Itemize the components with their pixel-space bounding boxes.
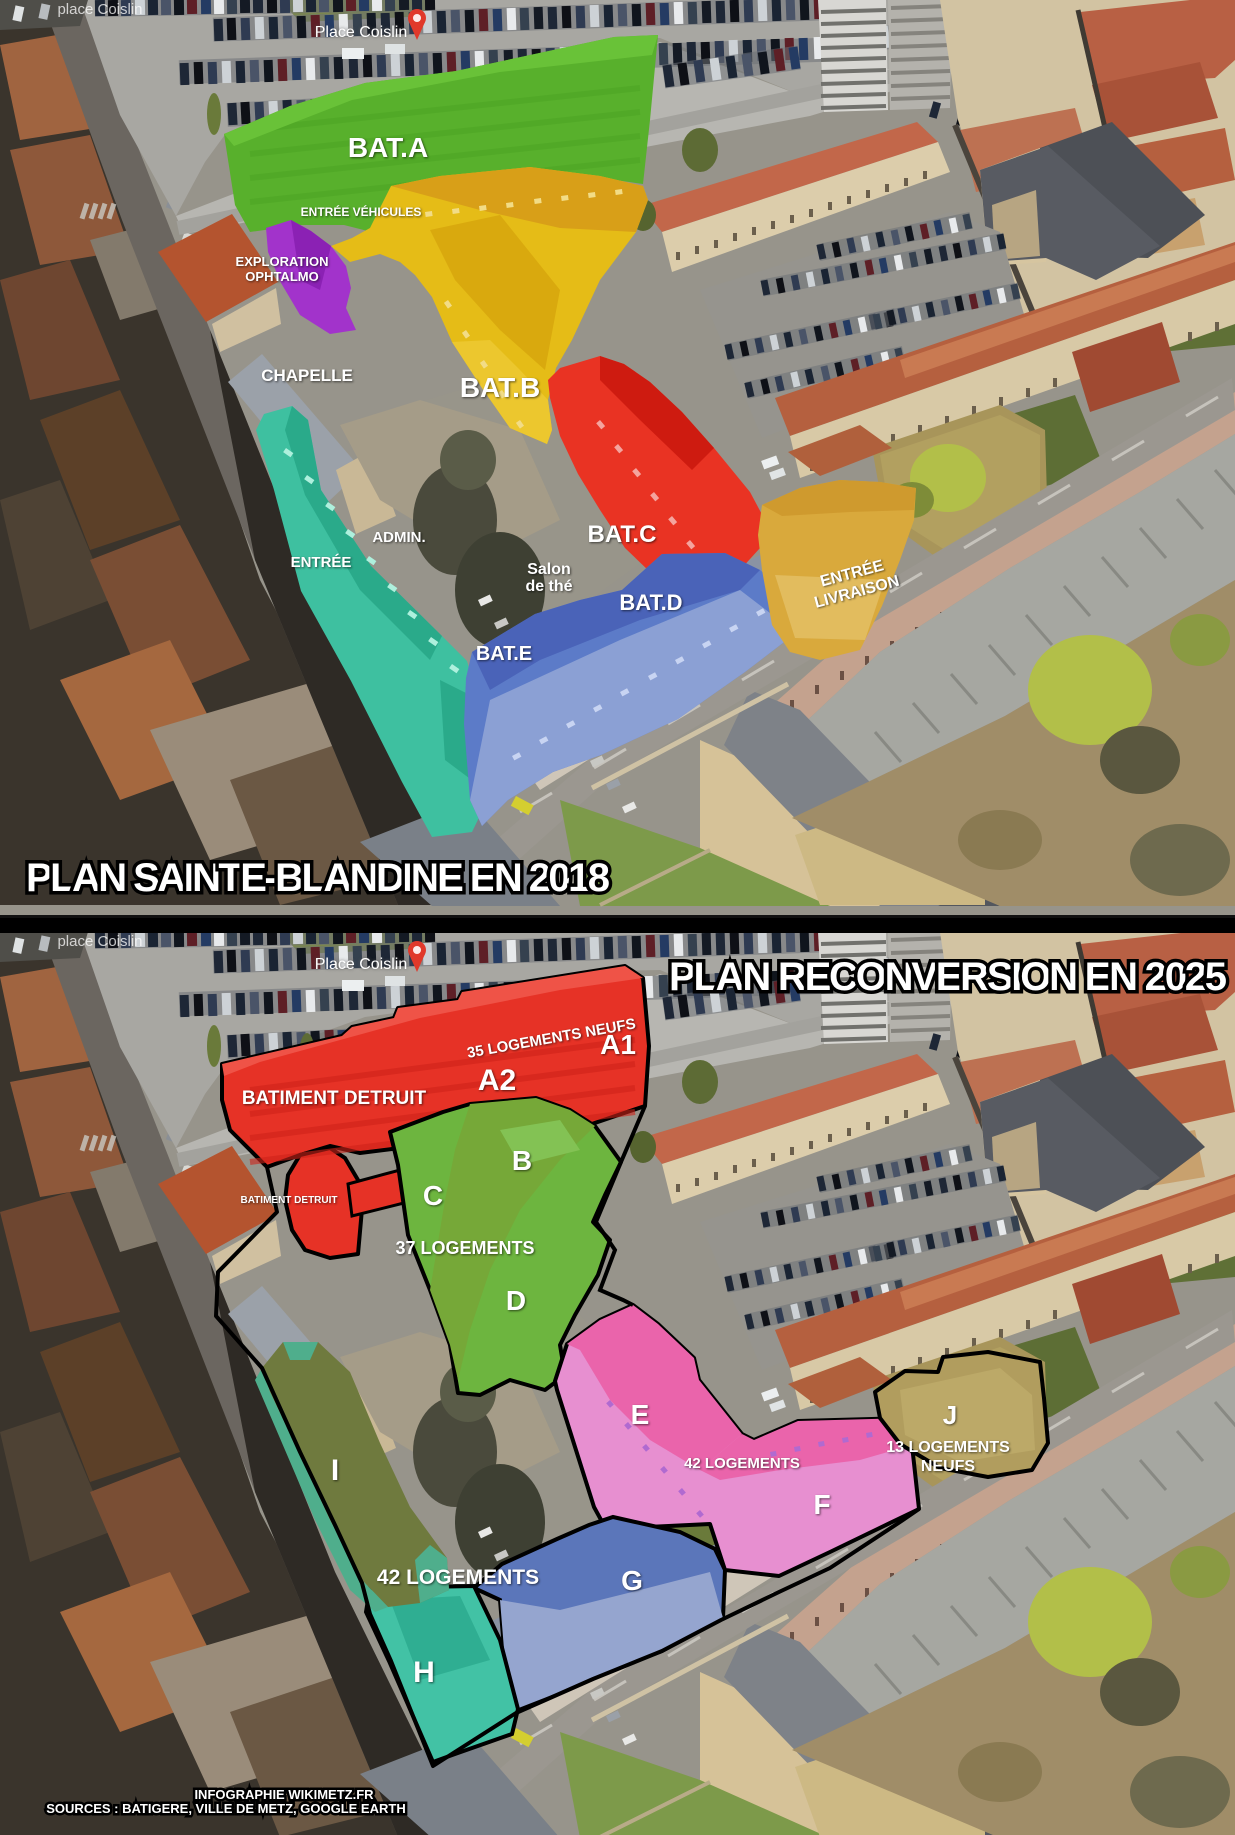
svg-text:OPHTALMO: OPHTALMO bbox=[245, 269, 318, 284]
svg-text:EXPLORATION: EXPLORATION bbox=[236, 254, 329, 269]
svg-text:SOURCES : BATIGERE, VILLE DE M: SOURCES : BATIGERE, VILLE DE METZ, GOOGL… bbox=[46, 1801, 405, 1816]
svg-text:E: E bbox=[631, 1399, 650, 1430]
svg-text:H: H bbox=[413, 1656, 435, 1689]
svg-text:37 LOGEMENTS: 37 LOGEMENTS bbox=[395, 1238, 534, 1258]
svg-text:A2: A2 bbox=[478, 1064, 516, 1097]
svg-text:BAT.E: BAT.E bbox=[476, 643, 532, 665]
svg-text:J: J bbox=[943, 1400, 957, 1430]
svg-text:BAT.C: BAT.C bbox=[588, 521, 657, 548]
svg-text:13 LOGEMENTS: 13 LOGEMENTS bbox=[886, 1439, 1010, 1456]
svg-text:ADMIN.: ADMIN. bbox=[372, 529, 425, 546]
svg-text:PLAN RECONVERSION EN 2025: PLAN RECONVERSION EN 2025 bbox=[669, 955, 1227, 999]
svg-text:BAT.D: BAT.D bbox=[619, 590, 682, 615]
svg-text:PLAN SAINTE-BLANDINE EN 2018: PLAN SAINTE-BLANDINE EN 2018 bbox=[26, 856, 610, 900]
svg-text:ENTRÉE: ENTRÉE bbox=[291, 554, 352, 571]
svg-text:C: C bbox=[423, 1180, 443, 1211]
svg-text:NEUFS: NEUFS bbox=[921, 1458, 976, 1475]
svg-text:ENTRÉE VÉHICULES: ENTRÉE VÉHICULES bbox=[301, 204, 422, 219]
svg-text:42 LOGEMENTS: 42 LOGEMENTS bbox=[684, 1455, 800, 1472]
svg-text:INFOGRAPHIE WIKIMETZ.FR: INFOGRAPHIE WIKIMETZ.FR bbox=[194, 1787, 374, 1802]
svg-text:F: F bbox=[813, 1489, 830, 1520]
svg-text:BAT.A: BAT.A bbox=[348, 132, 428, 163]
svg-text:B: B bbox=[512, 1145, 532, 1176]
svg-text:de thé: de thé bbox=[525, 578, 572, 595]
svg-text:BATIMENT DETRUIT: BATIMENT DETRUIT bbox=[240, 1195, 337, 1206]
svg-text:BAT.B: BAT.B bbox=[460, 372, 540, 403]
svg-text:CHAPELLE: CHAPELLE bbox=[261, 366, 353, 385]
svg-text:BATIMENT DETRUIT: BATIMENT DETRUIT bbox=[242, 1088, 427, 1109]
svg-text:G: G bbox=[621, 1565, 643, 1596]
svg-text:42 LOGEMENTS: 42 LOGEMENTS bbox=[377, 1566, 539, 1589]
svg-text:Salon: Salon bbox=[527, 561, 571, 578]
svg-text:I: I bbox=[331, 1454, 339, 1487]
svg-text:D: D bbox=[506, 1285, 526, 1316]
